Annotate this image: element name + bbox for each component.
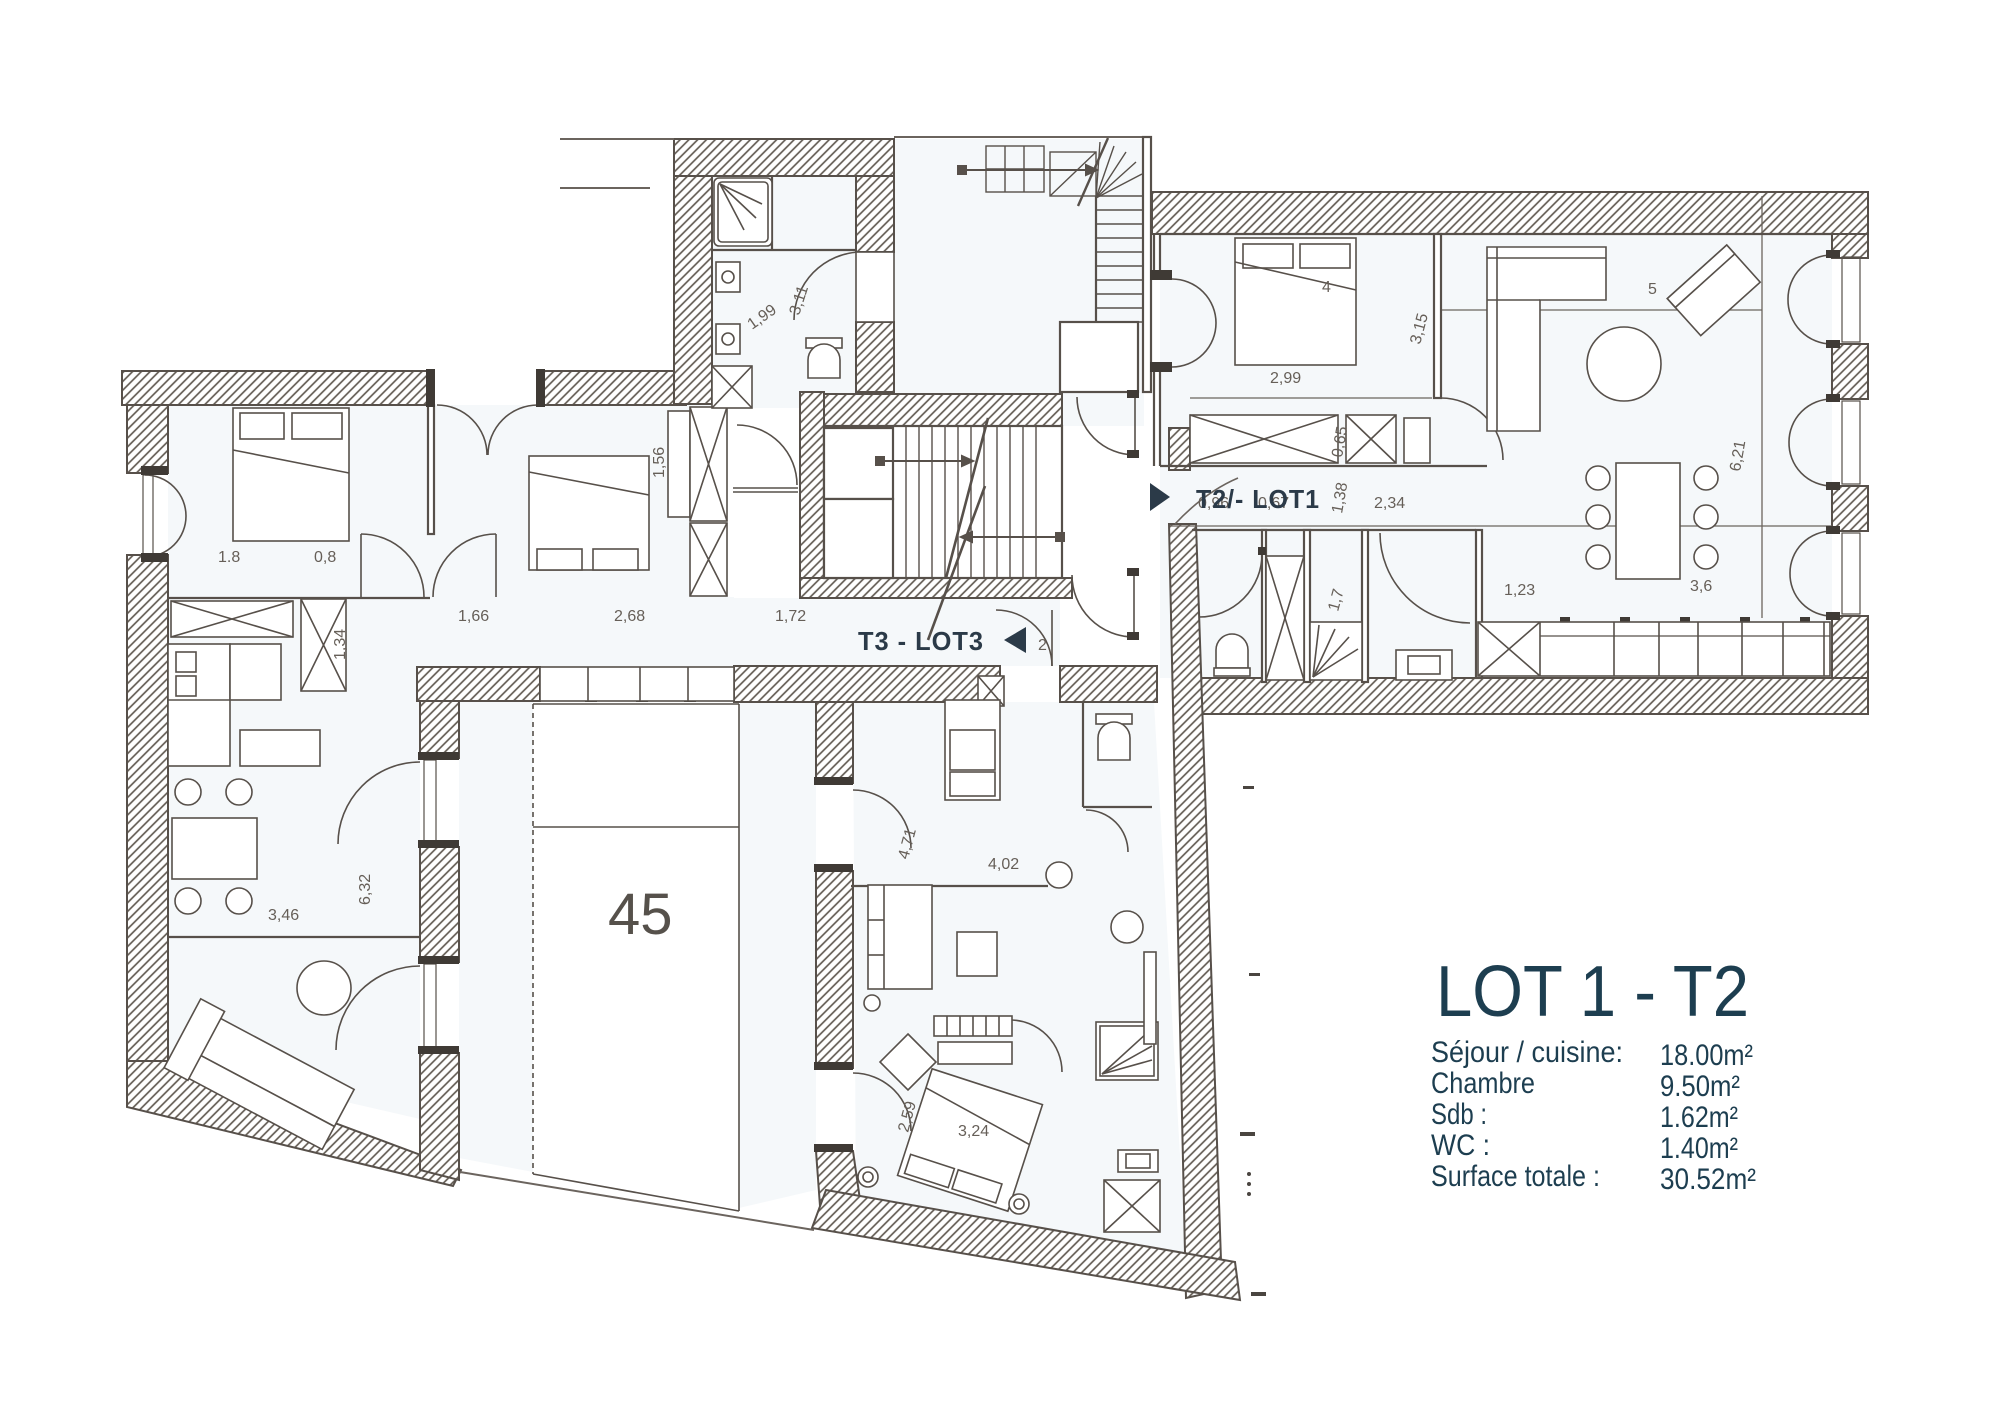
svg-text:1,56: 1,56 <box>651 447 668 478</box>
svg-text:2: 2 <box>1038 637 1047 654</box>
svg-text:1,23: 1,23 <box>1504 582 1535 599</box>
svg-text:2,68: 2,68 <box>614 608 645 625</box>
svg-text:6,32: 6,32 <box>357 874 374 905</box>
svg-text:Surface totale :: Surface totale : <box>1431 1160 1600 1193</box>
svg-text:1.40m²: 1.40m² <box>1660 1132 1738 1165</box>
svg-text:LOT 1 - T2: LOT 1 - T2 <box>1436 952 1749 1032</box>
svg-text:2,34: 2,34 <box>1374 495 1405 512</box>
svg-text:4: 4 <box>1322 279 1331 296</box>
svg-text:Séjour / cuisine:: Séjour / cuisine: <box>1431 1036 1623 1069</box>
svg-text:18.00m²: 18.00m² <box>1660 1039 1753 1072</box>
svg-text:Sdb :: Sdb : <box>1431 1098 1487 1131</box>
svg-text:1,72: 1,72 <box>775 608 806 625</box>
svg-text:1.62m²: 1.62m² <box>1660 1101 1738 1134</box>
svg-text:2,99: 2,99 <box>1270 370 1301 387</box>
svg-text:3,24: 3,24 <box>958 1123 989 1140</box>
svg-text:WC :: WC : <box>1431 1129 1490 1162</box>
svg-text:1,66: 1,66 <box>458 608 489 625</box>
svg-text:3,46: 3,46 <box>268 907 299 924</box>
svg-text:T2/- LOT1: T2/- LOT1 <box>1196 484 1320 514</box>
svg-text:T3 - LOT3: T3 - LOT3 <box>858 626 984 656</box>
svg-text:3,6: 3,6 <box>1690 578 1712 595</box>
svg-text:9.50m²: 9.50m² <box>1660 1070 1740 1103</box>
svg-text:5: 5 <box>1648 281 1657 298</box>
svg-text:1,34: 1,34 <box>332 629 349 660</box>
svg-text:4,02: 4,02 <box>988 856 1019 873</box>
svg-text:45: 45 <box>608 882 673 947</box>
svg-text:0,8: 0,8 <box>314 549 336 566</box>
svg-text:Chambre: Chambre <box>1431 1067 1535 1100</box>
svg-text:1.8: 1.8 <box>218 549 240 566</box>
svg-text:30.52m²: 30.52m² <box>1660 1163 1756 1196</box>
